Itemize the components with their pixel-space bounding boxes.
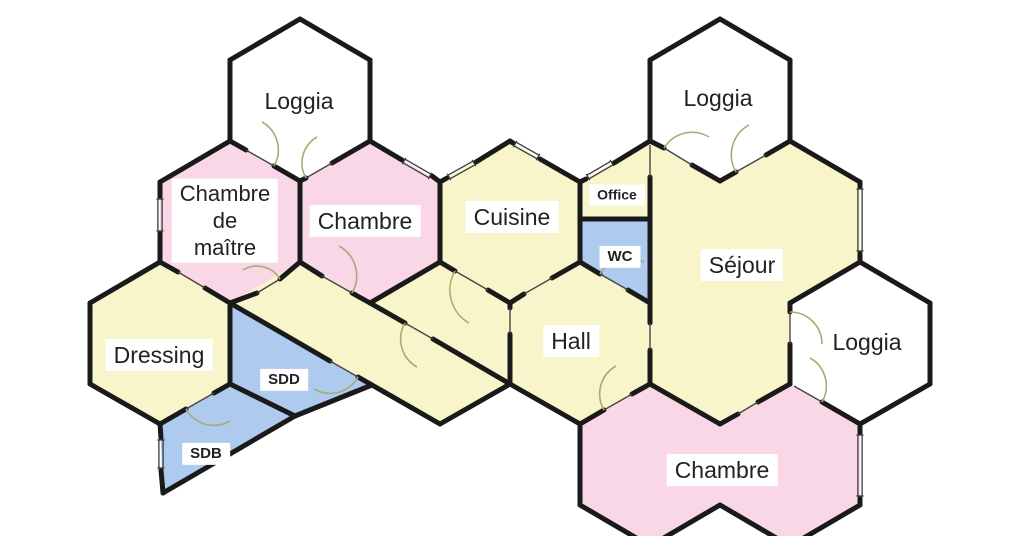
room-label-loggia-top-left: Loggia <box>256 85 341 117</box>
floor-plan-drawing <box>0 0 1024 536</box>
wall-segment <box>510 141 513 143</box>
room-label-sdb: SDB <box>182 443 230 465</box>
room-label-sejour: Séjour <box>701 249 783 281</box>
room-label-dressing: Dressing <box>106 339 213 371</box>
room-label-loggia-top-right: Loggia <box>675 82 760 114</box>
wall-segment <box>580 179 586 182</box>
room-label-hall: Hall <box>543 325 599 357</box>
wall-segment <box>161 470 163 493</box>
room-label-chambre-bottom: Chambre <box>667 454 778 486</box>
room-label-wc: WC <box>600 246 641 268</box>
room-office <box>580 141 650 219</box>
room-label-chambre-de-maitre: Chambre de maître <box>172 179 278 263</box>
room-label-office: Office <box>589 184 645 205</box>
floor-plan-page: LoggiaLoggiaChambre de maîtreChambreCuis… <box>0 0 1024 536</box>
room-label-loggia-right: Loggia <box>824 326 909 358</box>
room-label-chambre-top: Chambre <box>310 205 421 237</box>
room-label-cuisine: Cuisine <box>466 201 559 233</box>
wall-segment <box>160 424 161 438</box>
room-label-sdd: SDD <box>260 369 308 391</box>
wall-segment <box>440 178 447 182</box>
